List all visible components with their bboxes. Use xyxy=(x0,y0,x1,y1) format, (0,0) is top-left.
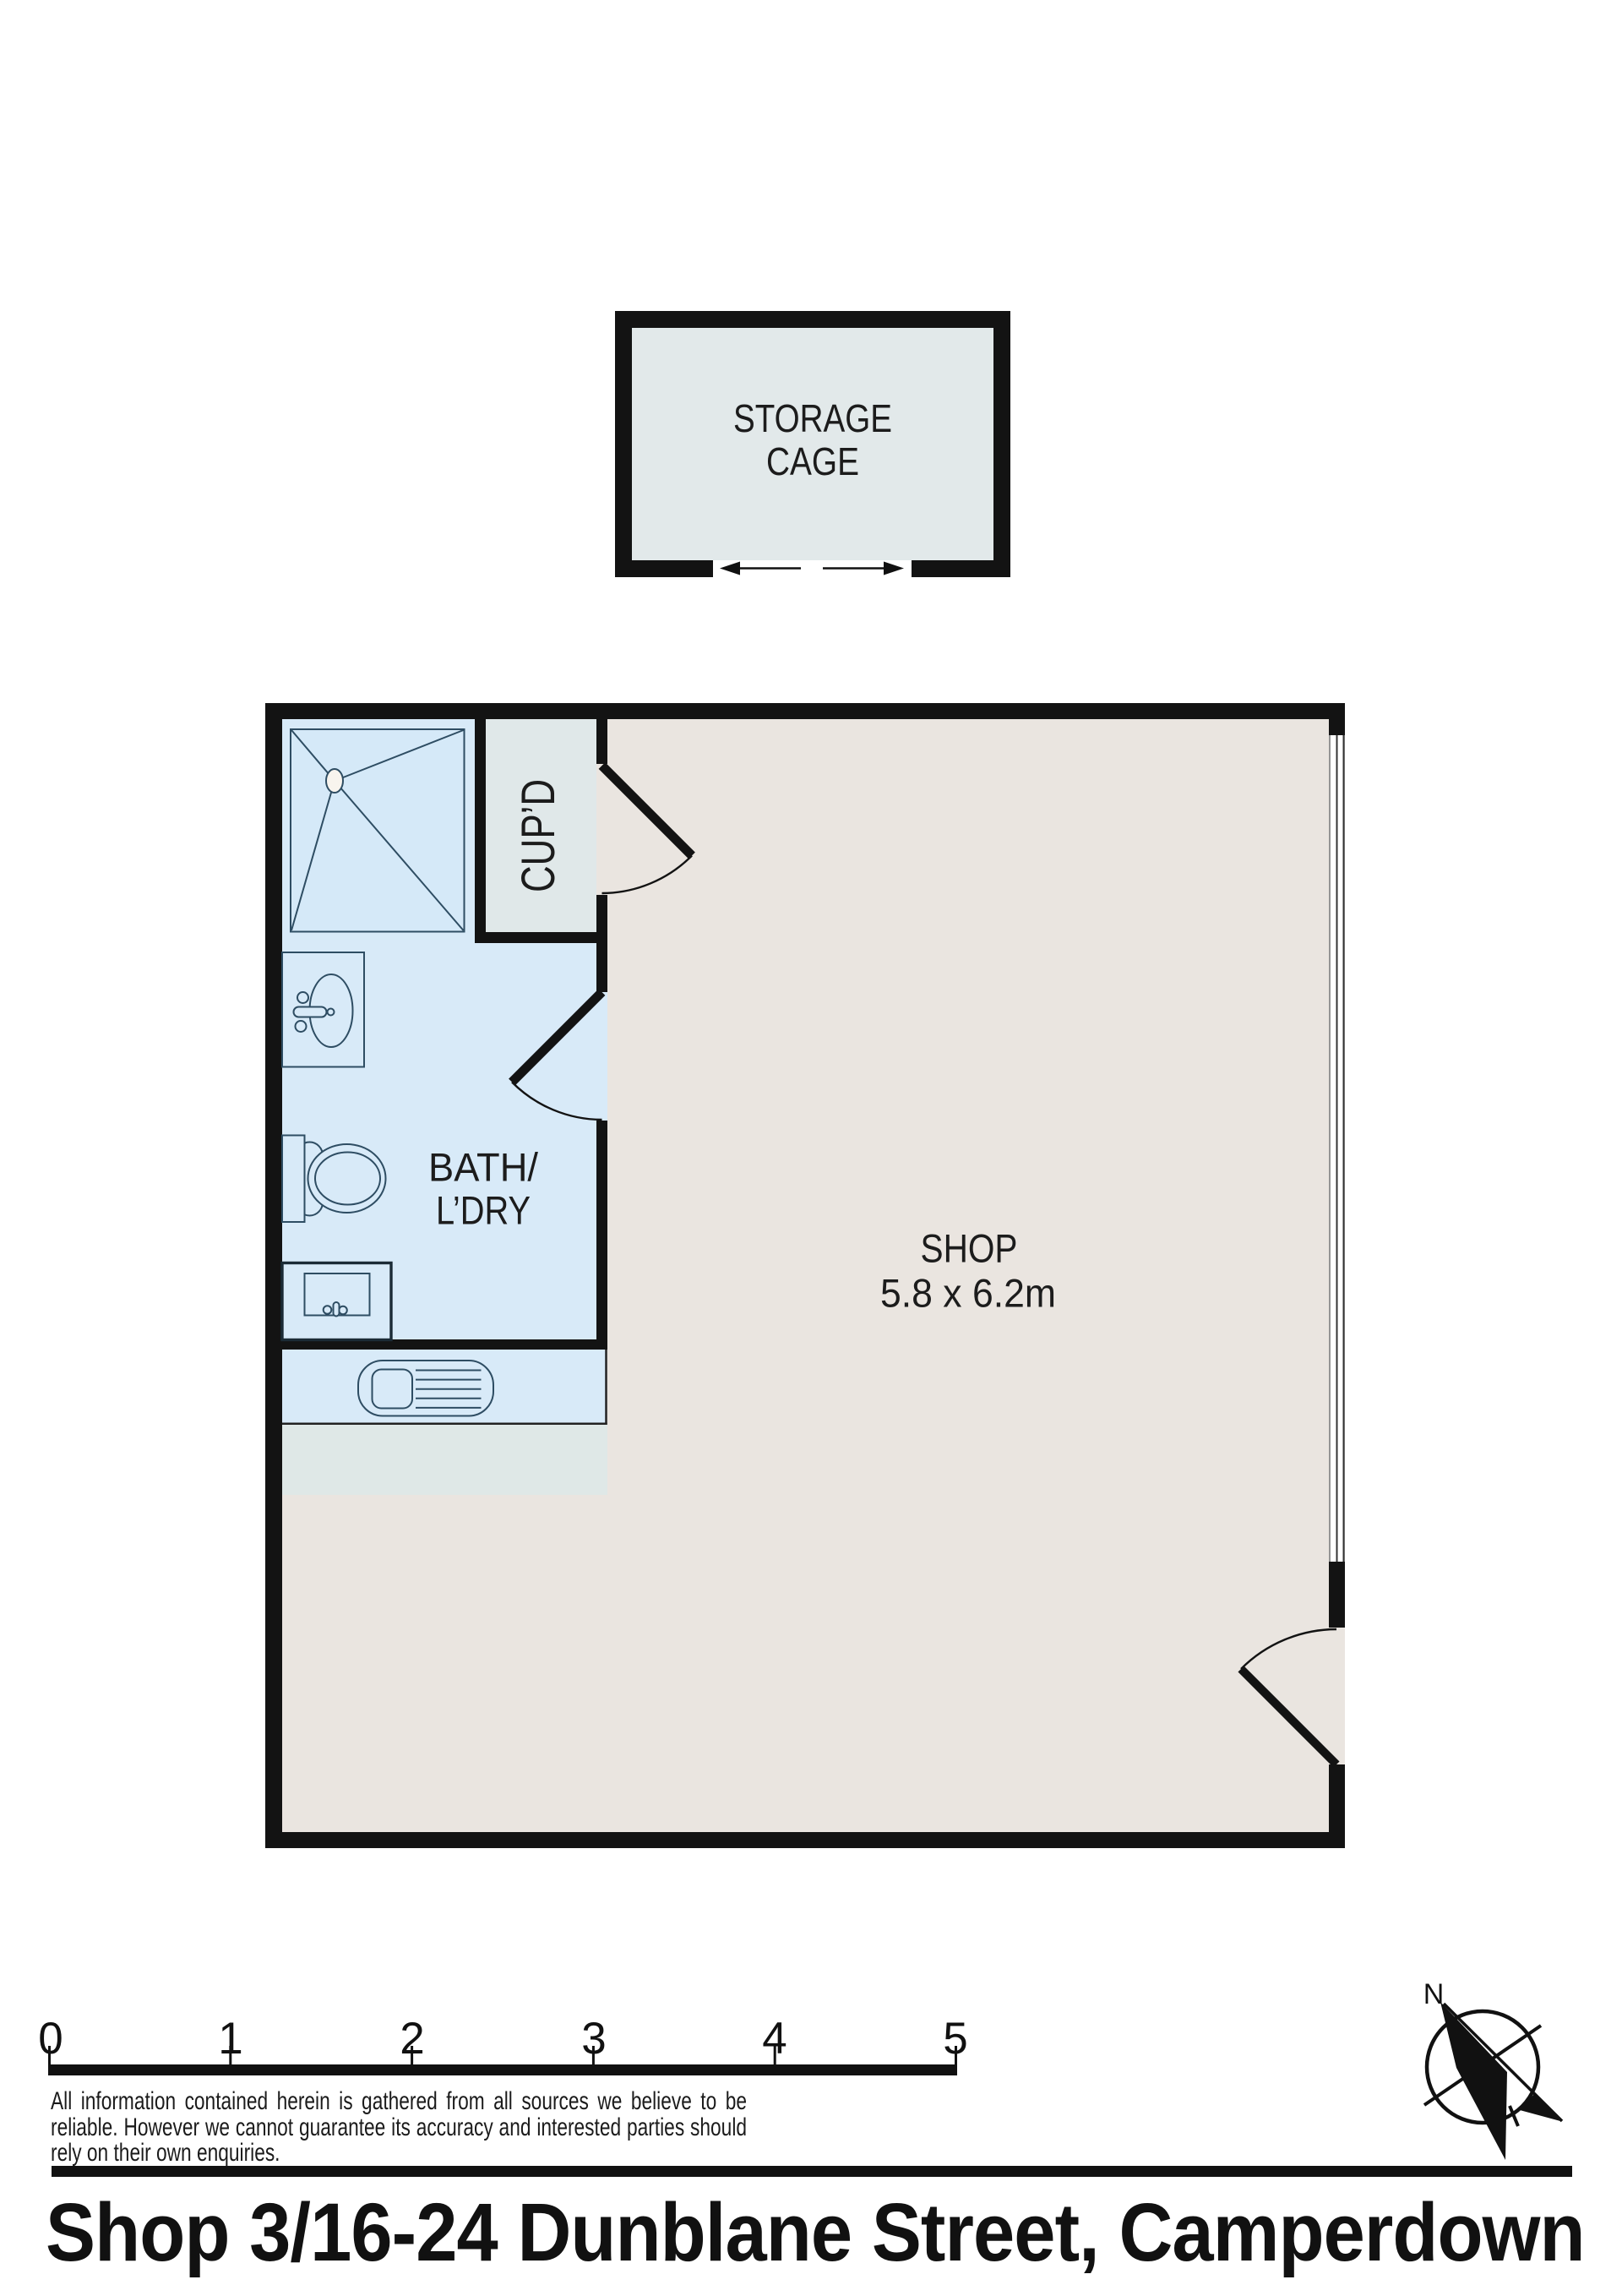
svg-text:N: N xyxy=(1423,1978,1445,2010)
svg-text:0: 0 xyxy=(38,2014,63,2064)
svg-text:CAGE: CAGE xyxy=(766,439,859,483)
svg-text:2: 2 xyxy=(400,2014,424,2064)
svg-text:STORAGE: STORAGE xyxy=(733,396,892,440)
svg-text:5: 5 xyxy=(943,2014,967,2064)
svg-text:5.8 x 6.2m: 5.8 x 6.2m xyxy=(880,1271,1056,1316)
svg-text:BATH/: BATH/ xyxy=(428,1145,539,1190)
svg-text:CUP’D: CUP’D xyxy=(511,779,564,892)
svg-text:4: 4 xyxy=(762,2014,787,2064)
svg-text:1: 1 xyxy=(218,2014,242,2064)
svg-text:SHOP: SHOP xyxy=(921,1226,1018,1271)
svg-text:L’DRY: L’DRY xyxy=(436,1188,531,1233)
svg-text:3: 3 xyxy=(581,2014,606,2064)
